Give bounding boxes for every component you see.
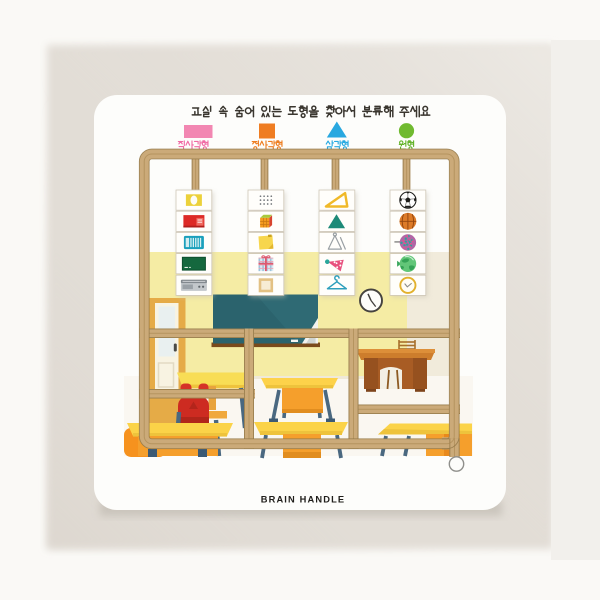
svg-text:BRAIN HANDLE: BRAIN HANDLE bbox=[261, 495, 346, 505]
